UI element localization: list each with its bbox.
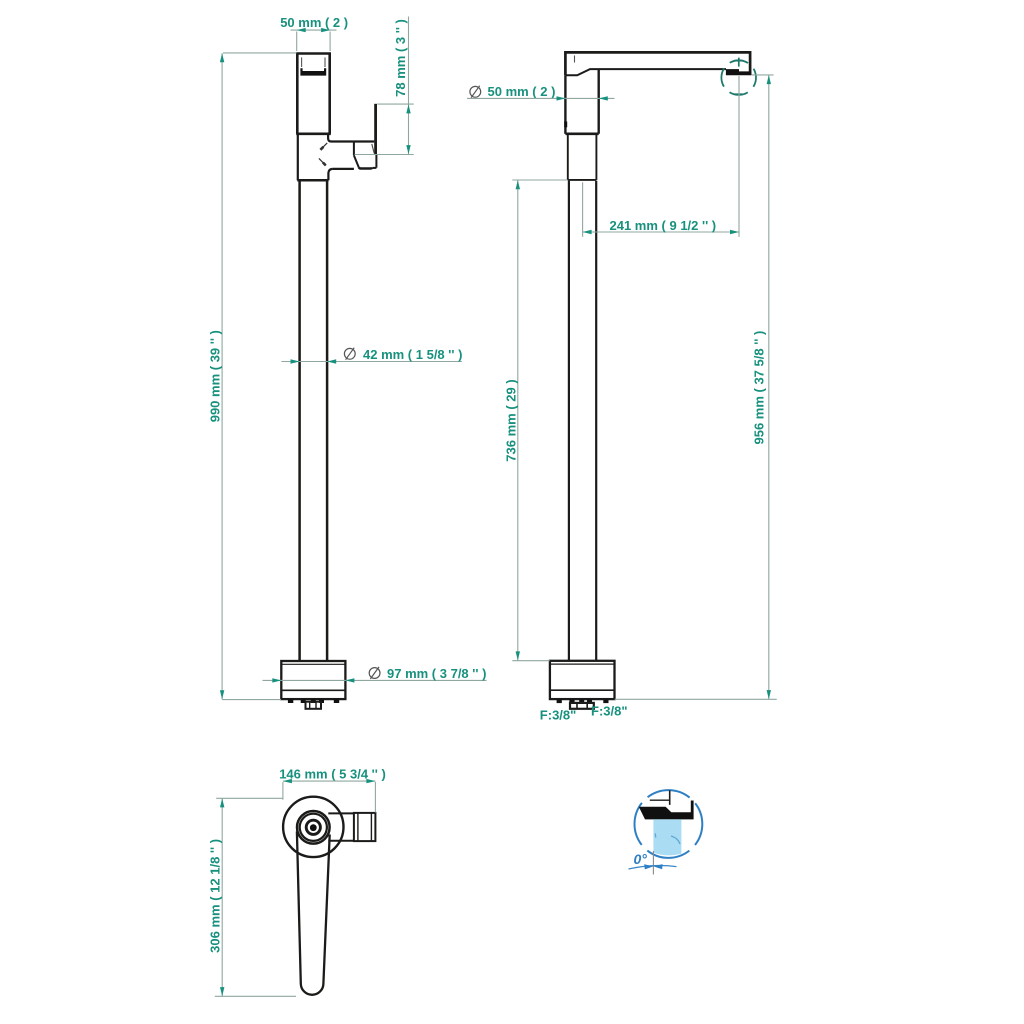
svg-text:F:3/8": F:3/8" [540, 708, 577, 723]
svg-text:78 mm ( 3 '' ): 78 mm ( 3 '' ) [393, 19, 408, 97]
svg-text:42 mm ( 1 5/8 '' ): 42 mm ( 1 5/8 '' ) [363, 347, 462, 362]
svg-text:F:3/8": F:3/8" [591, 704, 628, 719]
svg-text:146 mm ( 5 3/4 '' ): 146 mm ( 5 3/4 '' ) [279, 767, 386, 782]
svg-text:50 mm ( 2 ): 50 mm ( 2 ) [488, 84, 556, 99]
svg-text:0°: 0° [634, 851, 648, 867]
svg-text:97 mm ( 3 7/8 '' ): 97 mm ( 3 7/8 '' ) [387, 666, 486, 681]
svg-text:306 mm ( 12 1/8 '' ): 306 mm ( 12 1/8 '' ) [208, 839, 223, 953]
svg-text:956 mm ( 37 5/8 '' ): 956 mm ( 37 5/8 '' ) [752, 331, 767, 445]
svg-text:990 mm ( 39 '' ): 990 mm ( 39 '' ) [207, 330, 222, 422]
svg-text:736 mm ( 29 ): 736 mm ( 29 ) [503, 379, 518, 461]
svg-text:50 mm ( 2 ): 50 mm ( 2 ) [280, 15, 348, 30]
svg-text:241 mm ( 9 1/2 '' ): 241 mm ( 9 1/2 '' ) [610, 218, 717, 233]
